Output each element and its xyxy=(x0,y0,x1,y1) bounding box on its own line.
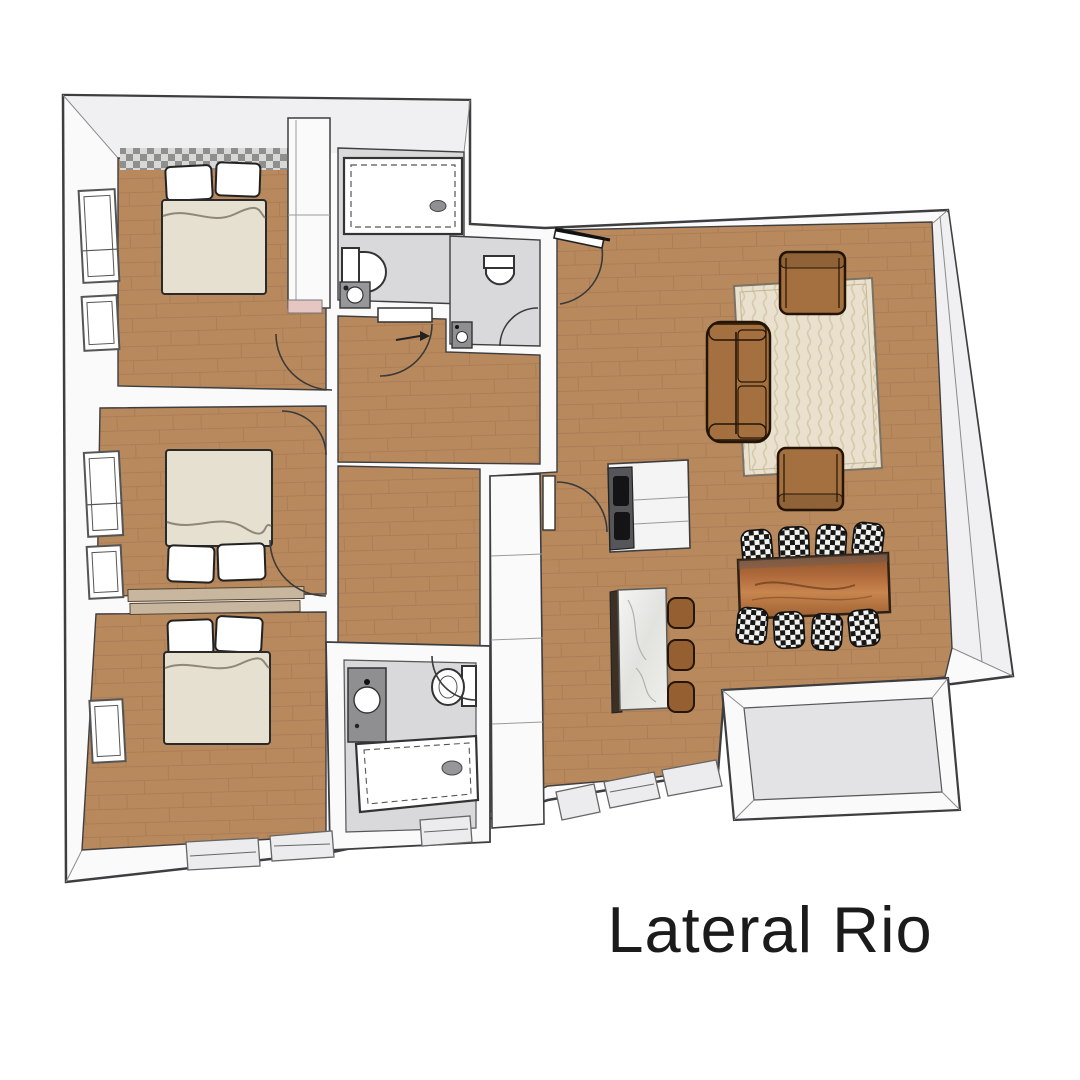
sofa-icon xyxy=(707,322,770,442)
bar-stool-icon xyxy=(668,640,694,670)
dining-chair-icon xyxy=(773,611,805,649)
bathtub-icon xyxy=(344,158,462,234)
pillow-icon xyxy=(215,616,263,653)
dining-chair-icon xyxy=(847,609,881,648)
top-wall-shade xyxy=(64,96,469,157)
corridor-floor xyxy=(338,466,480,648)
window-icon xyxy=(87,545,124,599)
toilet-icon xyxy=(484,256,514,284)
sliding-door-icon xyxy=(420,816,472,846)
armchair-icon xyxy=(780,252,845,314)
window-icon xyxy=(89,699,125,763)
pillow-icon xyxy=(167,619,213,656)
door-leaf xyxy=(543,476,555,530)
bed-head-ledge xyxy=(130,601,300,615)
duvet xyxy=(166,450,272,546)
floor-plan-rendering: Lateral Rio xyxy=(0,0,1080,1080)
kitchen-counter xyxy=(608,460,690,552)
balcony xyxy=(722,678,960,820)
sink-icon xyxy=(348,668,386,742)
sink-icon xyxy=(340,282,370,308)
bar-stool-icon xyxy=(668,682,694,712)
pillow-icon xyxy=(215,162,260,197)
plan-title: Lateral Rio xyxy=(607,893,932,966)
kitchen-island-icon xyxy=(610,588,668,713)
bar-stools xyxy=(668,598,694,712)
sliding-door-icon xyxy=(186,838,260,870)
pillow-icon xyxy=(165,165,213,201)
double-bed-icon xyxy=(164,616,270,744)
window-icon xyxy=(84,451,123,537)
floor-plan-page: Lateral Rio xyxy=(0,0,1080,1080)
wardrobe-icon xyxy=(288,118,330,313)
dining-chair-icon xyxy=(811,613,843,651)
dresser-top xyxy=(288,300,322,313)
cabinet-icon xyxy=(490,474,544,828)
balcony-floor xyxy=(744,698,942,800)
door-leaf xyxy=(378,308,432,322)
window-icon xyxy=(82,295,120,351)
bar-stool-icon xyxy=(668,598,694,628)
pillow-icon xyxy=(217,543,265,581)
pillow-icon xyxy=(167,545,214,583)
double-bed-icon xyxy=(166,450,272,583)
dining-chair-icon xyxy=(735,607,768,645)
bathtub-icon xyxy=(356,736,478,812)
armchair-icon xyxy=(778,448,843,510)
sink-icon xyxy=(452,322,472,348)
sliding-door-icon xyxy=(270,831,334,861)
window-icon xyxy=(79,189,120,283)
bed-foot-ledge xyxy=(128,586,304,601)
